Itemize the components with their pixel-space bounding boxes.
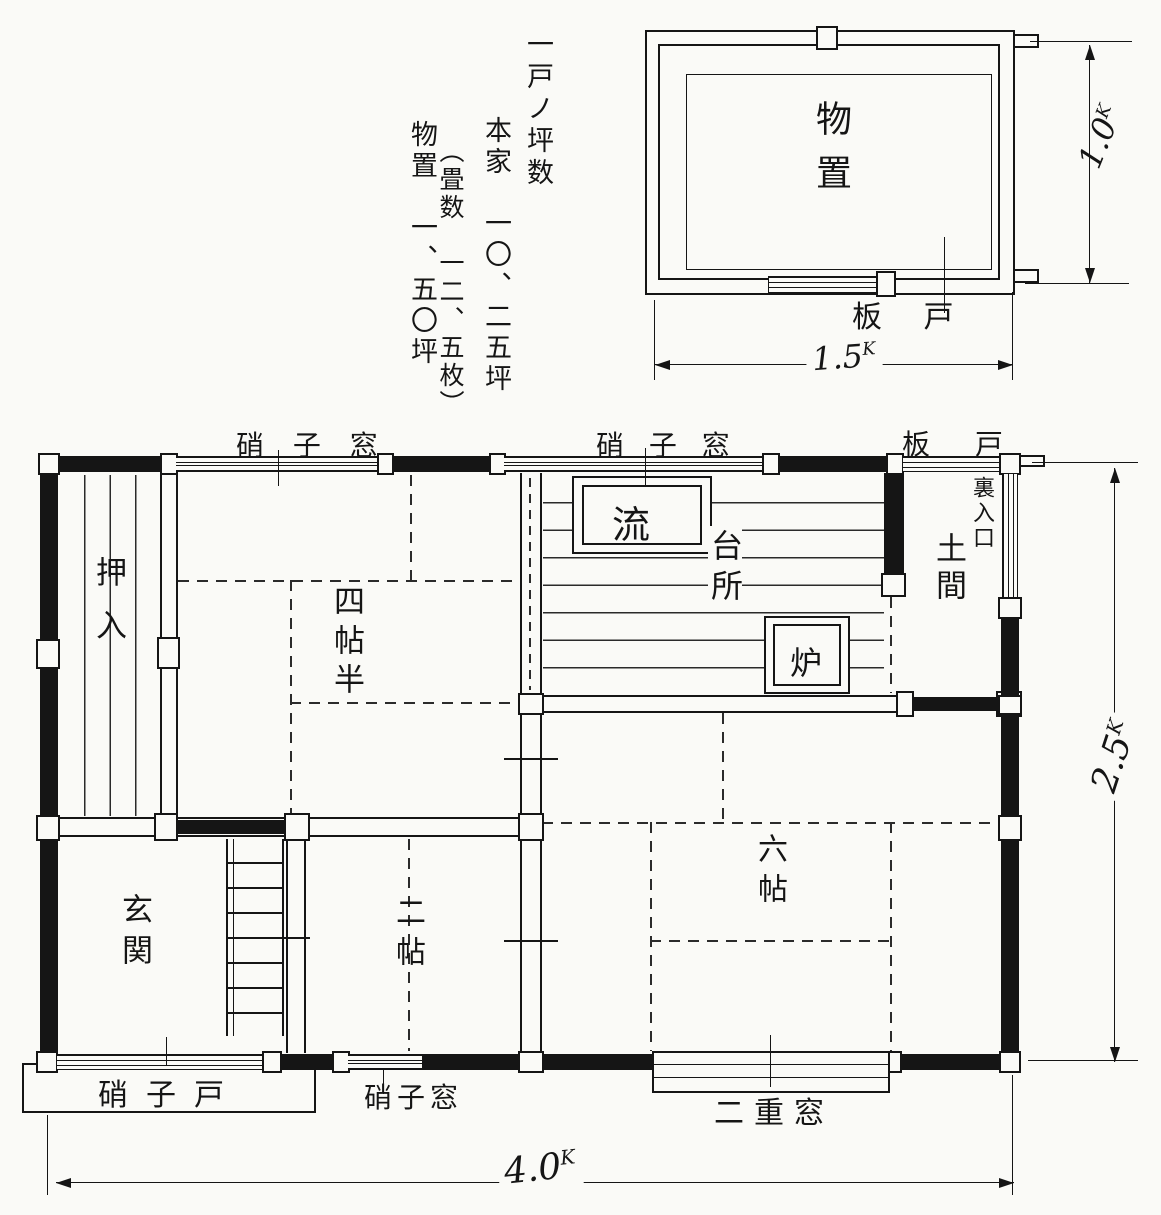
room45-tatami-line-h1 bbox=[178, 580, 520, 582]
double-window-leader bbox=[770, 1035, 771, 1087]
right-wall-black-2 bbox=[1001, 713, 1019, 817]
main-width-arrow-right bbox=[999, 1178, 1014, 1188]
shed-height-value: 1.0 bbox=[1070, 112, 1124, 173]
bottom-wall-black-4 bbox=[900, 1054, 1000, 1070]
doma-bottom-wall-black bbox=[911, 697, 997, 711]
main-height-arrow-bottom bbox=[1110, 1047, 1120, 1062]
doma-open-boundary bbox=[890, 597, 892, 693]
bottom-wall-black-3 bbox=[542, 1054, 652, 1070]
top-door-jamb bbox=[1019, 455, 1045, 467]
room2-label: 二帖 bbox=[392, 896, 422, 976]
closet-wall-post bbox=[157, 637, 180, 669]
shed-width-arrow-right bbox=[998, 360, 1013, 370]
room6-tatami-line-h1 bbox=[542, 822, 1000, 824]
left-wall-black-2 bbox=[40, 667, 58, 817]
room6-tatami-line-h2 bbox=[650, 940, 890, 942]
stair-room2-wall bbox=[286, 837, 306, 1053]
top-wall-black-1 bbox=[58, 456, 162, 472]
middle-wall-post-3 bbox=[518, 813, 544, 841]
bottom-window-room2 bbox=[348, 1054, 424, 1070]
top-wall-black-3 bbox=[778, 456, 888, 472]
staircase-inner-rail bbox=[233, 839, 234, 1036]
bottom-wall-post-3 bbox=[518, 1051, 544, 1073]
main-width-value: 4.0 bbox=[502, 1146, 563, 1193]
glass-door-leader bbox=[166, 1037, 167, 1065]
right-wall-back-door bbox=[1002, 473, 1018, 599]
middle-wall-post-1 bbox=[154, 813, 178, 841]
window-leader-top-mid bbox=[645, 448, 646, 486]
bottom-double-window bbox=[652, 1051, 890, 1093]
shed-width-arrow-left bbox=[655, 360, 670, 370]
main-dim-ext-bottom bbox=[1028, 1060, 1138, 1061]
bottom-wall-corner-sw bbox=[36, 1051, 58, 1073]
shed-door-label: 板 戸 bbox=[852, 292, 970, 336]
main-width-arrow-left bbox=[56, 1178, 71, 1188]
right-wall-black-3 bbox=[1001, 839, 1019, 1053]
kitchen-bottom-wall bbox=[542, 695, 898, 713]
double-window-label: 二重窓 bbox=[714, 1088, 834, 1132]
shed-width-dim-label: 1.5K bbox=[805, 335, 884, 378]
main-height-arrow-top bbox=[1110, 468, 1120, 483]
right-wall-black-1 bbox=[1001, 617, 1019, 697]
center-wall-mid bbox=[520, 713, 542, 817]
room45-tatami-line-h2 bbox=[290, 702, 520, 704]
closet-label: 押入 bbox=[92, 556, 123, 662]
left-wall-post-1 bbox=[36, 639, 60, 669]
kitchen-wall-post-mid bbox=[896, 691, 914, 717]
right-wall-post-3 bbox=[998, 815, 1022, 841]
floor-plan-sheet: 一戸ノ坪数 本家 一〇、二五坪 （畳数 一二、五枚） 物置 一、五〇坪 物置 板… bbox=[0, 0, 1161, 1215]
shed-room-label: 物置 bbox=[812, 100, 848, 208]
room6-tatami-line-v2 bbox=[650, 822, 652, 1051]
shed-width-unit: K bbox=[862, 339, 877, 360]
bottom-wall-post-1 bbox=[262, 1051, 282, 1073]
shed-door-jamb-bottom bbox=[1013, 269, 1039, 283]
main-width-dim-label: 4.0K bbox=[496, 1144, 584, 1194]
top-wall-corner-nw bbox=[38, 453, 60, 475]
room45-tatami-line-v1 bbox=[410, 475, 412, 580]
middle-wall-post-2 bbox=[284, 813, 310, 841]
shed-width-value: 1.5 bbox=[811, 337, 864, 378]
bottom-glass-door bbox=[56, 1054, 264, 1070]
note-shed-area: 物置 一、五〇坪 bbox=[408, 120, 435, 368]
note-tatami-count: （畳数 一二、五枚） bbox=[438, 138, 463, 418]
shed-dim-ext-bottom bbox=[1025, 283, 1129, 284]
window-leader-top-left bbox=[278, 450, 279, 486]
left-wall-post-2 bbox=[36, 815, 60, 841]
center-wall-upper bbox=[520, 473, 542, 695]
shed-height-arrow-bottom bbox=[1085, 268, 1095, 283]
doma-label: 土間 bbox=[932, 532, 963, 606]
center-wall-sliding-door bbox=[529, 478, 531, 690]
window-label-top-mid: 硝 子 窓 bbox=[596, 424, 738, 464]
window-bottom-label: 硝子窓 bbox=[364, 1076, 463, 1116]
room45-tatami-line-v2 bbox=[290, 580, 292, 817]
main-width-unit: K bbox=[559, 1145, 576, 1169]
kitchen-label: 台所 bbox=[708, 526, 742, 612]
board-door-label-top: 板 戸 bbox=[902, 423, 1021, 463]
middle-wall-black-seg bbox=[176, 820, 290, 834]
bottom-wall-black-1 bbox=[280, 1054, 334, 1070]
tick-center-wall bbox=[504, 758, 558, 760]
room45-label: 四帖半 bbox=[330, 585, 361, 702]
right-wall-post-1 bbox=[998, 597, 1022, 619]
doma-kitchen-wall bbox=[884, 473, 904, 575]
genkan-label: 玄関 bbox=[118, 893, 149, 975]
shed-height-arrow-top bbox=[1085, 45, 1095, 60]
sink-label: 流 bbox=[612, 494, 650, 549]
main-height-dim-label: 2.5K bbox=[1082, 710, 1147, 803]
window-label-top-left: 硝 子 窓 bbox=[236, 424, 388, 464]
left-wall-black-1 bbox=[40, 473, 58, 641]
top-wall-black-2 bbox=[392, 456, 491, 472]
right-wall-post-2 bbox=[998, 695, 1022, 715]
room6-tatami-line-v3 bbox=[890, 822, 892, 1051]
room2-right-wall bbox=[520, 837, 542, 1053]
shed-top-post bbox=[816, 26, 838, 50]
bottom-wall-corner-se bbox=[999, 1051, 1021, 1073]
shed-dim-ext-top bbox=[1030, 41, 1132, 42]
note-total-area: 一戸ノ坪数 bbox=[524, 30, 551, 190]
main-dim-ext-left bbox=[47, 1115, 48, 1195]
kitchen-wall-post-left bbox=[518, 693, 544, 715]
bottom-wall-black-2 bbox=[422, 1054, 520, 1070]
left-wall-black-3 bbox=[40, 839, 58, 1053]
main-dim-ext-right bbox=[1012, 1075, 1013, 1195]
main-dim-ext-top bbox=[1032, 462, 1138, 463]
glass-door-label: 硝子戸 bbox=[98, 1070, 242, 1114]
room6-label: 六帖 bbox=[754, 833, 784, 913]
main-height-value: 2.5 bbox=[1083, 730, 1140, 797]
doma-wall-post bbox=[881, 573, 906, 597]
tick-stairs bbox=[262, 937, 310, 939]
shed-height-dim-label: 1.0K bbox=[1068, 95, 1132, 180]
hearth-label: 炉 bbox=[790, 638, 822, 684]
back-entrance-label: 裏入口 bbox=[970, 476, 992, 551]
tick-room2-wall bbox=[504, 940, 558, 942]
room6-tatami-line-v1 bbox=[722, 713, 724, 822]
note-main-house-area: 本家 一〇、二五坪 bbox=[482, 116, 509, 395]
